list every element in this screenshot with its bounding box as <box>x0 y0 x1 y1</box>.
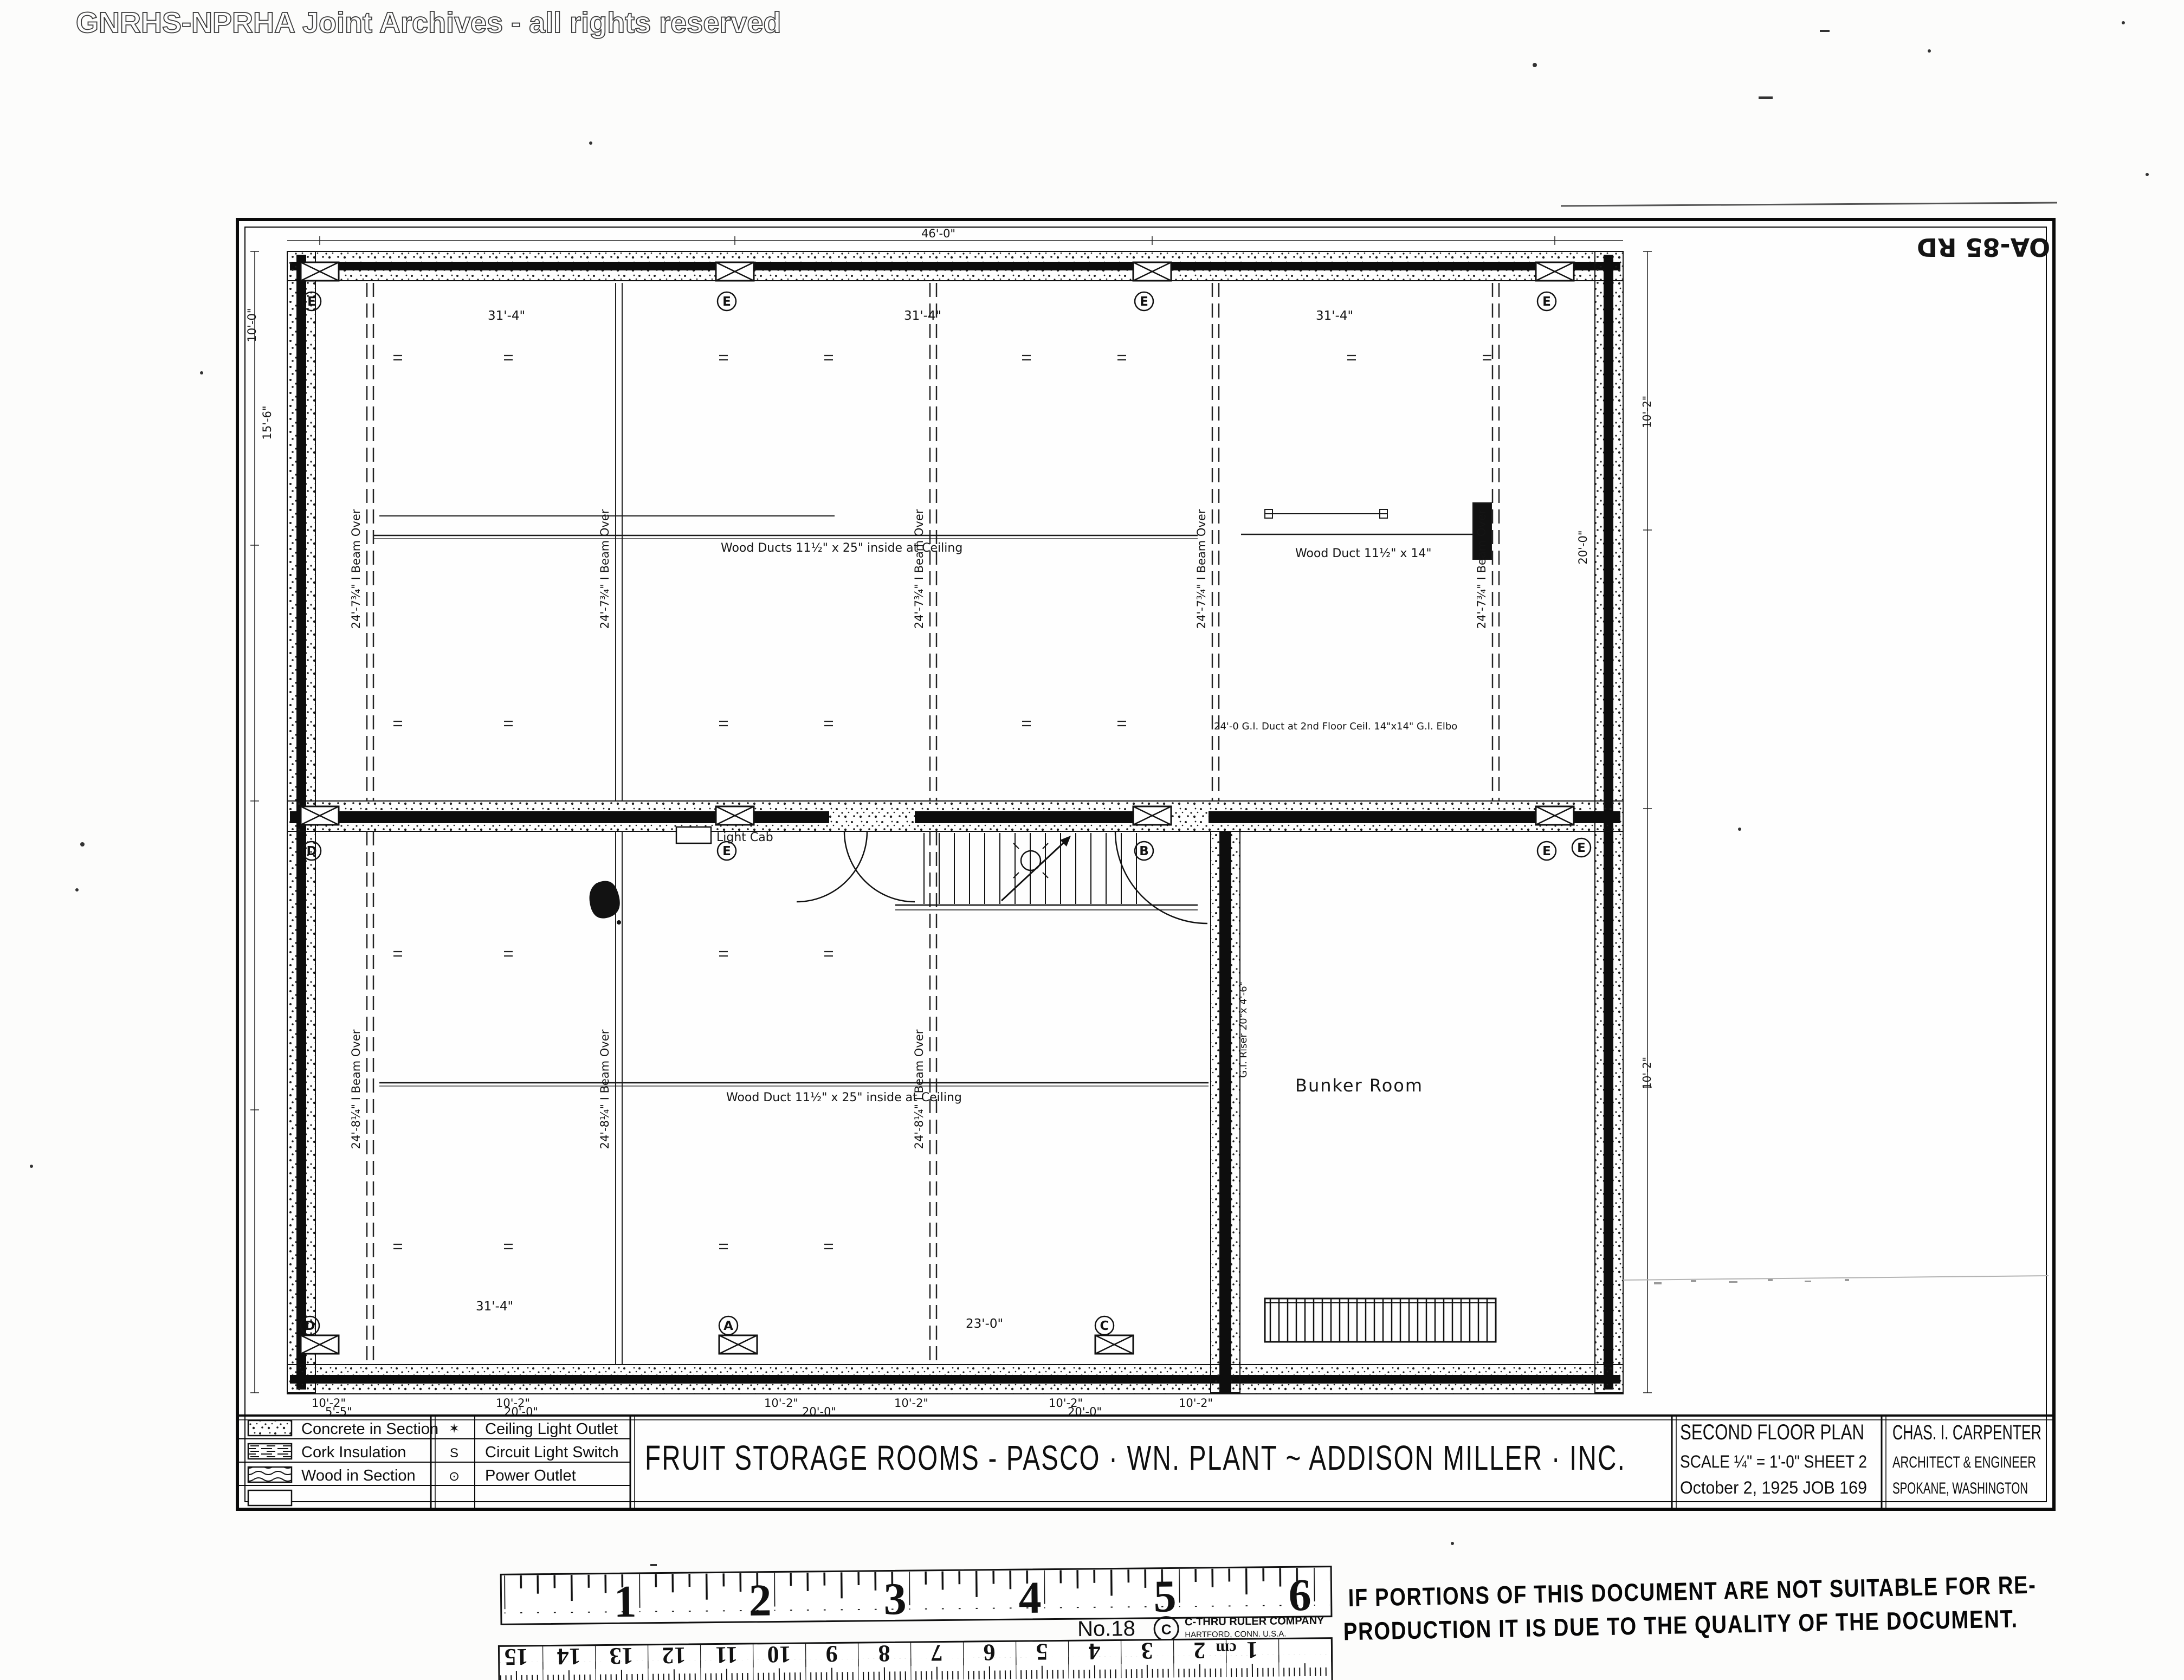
dimension: 10'-2" <box>764 1397 798 1410</box>
watermark-text: GNRHS-NPRHA Joint Archives - all rights … <box>76 7 781 39</box>
beam-label: 24'-7¾" I Beam Over <box>350 509 363 629</box>
column-mark: D <box>306 844 316 858</box>
column-mark: E <box>1542 295 1551 309</box>
inch-number: 5 <box>1153 1571 1177 1621</box>
architect-line: ARCHITECT & ENGINEER <box>1892 1453 2036 1471</box>
legend-symbol: ✶ <box>449 1421 460 1436</box>
drawing-title: FRUIT STORAGE ROOMS - PASCO · WN. PLANT … <box>645 1438 1626 1477</box>
cm-number: 7 <box>931 1640 942 1666</box>
duct-label-top: Wood Ducts 11½" x 25" inside at Ceiling <box>721 541 962 555</box>
column-mark: E <box>1140 295 1148 309</box>
bay-dimension: 31'-4" <box>1316 309 1353 323</box>
cm-number: 5 <box>1036 1639 1048 1665</box>
legend-label: Ceiling Light Outlet <box>485 1420 618 1438</box>
quality-stamp: IF PORTIONS OF THIS DOCUMENT ARE NOT SUI… <box>1342 1571 2037 1646</box>
blueprint-drawing: GNRHS-NPRHA Joint Archives - all rights … <box>0 0 2184 1680</box>
cm-number: 12 <box>662 1642 686 1669</box>
centimeter-ruler-upside-down: 15 14 13 12 11 10 9 8 7 6 5 4 3 2 1 cm <box>499 1636 1332 1680</box>
empty-swatch <box>248 1490 292 1505</box>
beam-label: 24'-7¾" I Beam Over <box>1195 509 1208 629</box>
legend-label: Wood in Section <box>301 1467 416 1484</box>
wood-waves-swatch <box>248 1467 292 1482</box>
bunker-grill <box>1265 1298 1496 1342</box>
cm-number: 4 <box>1088 1638 1100 1665</box>
light-cab-label: Light Cab <box>716 831 773 844</box>
bunker-room-label: Bunker Room <box>1295 1075 1423 1096</box>
legend-symbol: S <box>450 1446 458 1461</box>
bunker-room-wall <box>1211 831 1240 1393</box>
column-mark: E <box>722 295 731 309</box>
drawing-info-line: SECOND FLOOR PLAN <box>1680 1420 1864 1444</box>
column-mark: C <box>1100 1319 1109 1333</box>
beam-label: 24'-7¾" I Beam Over <box>598 509 611 629</box>
dimension: 15'-6" <box>261 405 274 440</box>
architect-line: CHAS. I. CARPENTER <box>1892 1421 2041 1444</box>
brand-logo-letter: C <box>1161 1621 1172 1637</box>
beam-label: 24'-7¾" I Beam Over <box>913 509 926 629</box>
cork-dashes-swatch <box>248 1444 292 1459</box>
drawing-info-block: SECOND FLOOR PLAN SCALE ¼" = 1'-0" SHEET… <box>1680 1420 1867 1497</box>
cm-number: 10 <box>767 1641 791 1668</box>
dimension: 10'-0" <box>245 308 259 342</box>
dimension: 46'-0" <box>921 227 955 240</box>
beam-label: 24'-7¾" I Beam Over <box>1475 509 1488 629</box>
photographed-rulers: 1 2 3 4 5 6 No.18 C C-THRU RULER COMPANY… <box>498 1567 1332 1680</box>
column-mark: E <box>722 844 731 858</box>
legend-symbol: ⊙ <box>449 1469 460 1484</box>
duct-label-bottom: Wood Duct 11½" x 25" inside at Ceiling <box>726 1091 962 1104</box>
cm-number: 15 <box>504 1644 528 1670</box>
dimension: 20'-0" <box>1576 530 1589 564</box>
light-cabinet-box <box>676 827 711 843</box>
cm-number: 2 <box>1193 1637 1205 1664</box>
inch-number: 2 <box>748 1575 772 1626</box>
beam-label: 24'-8¼" I Beam Over <box>598 1029 611 1149</box>
column-mark: D <box>305 1319 315 1333</box>
scanned-blueprint-page: GNRHS-NPRHA Joint Archives - all rights … <box>0 0 2184 1680</box>
legend-label: Circuit Light Switch <box>485 1444 619 1461</box>
inch-number: 3 <box>883 1574 907 1624</box>
cm-number: 13 <box>609 1643 633 1669</box>
drawing-info-line: October 2, 1925 JOB 169 <box>1680 1478 1867 1497</box>
beam-label: 24'-8¼" I Beam Over <box>350 1029 363 1149</box>
cm-unit-label: cm <box>1216 1639 1237 1657</box>
column-mark: E <box>307 295 316 309</box>
stamp-line: PRODUCTION IT IS DUE TO THE QUALITY OF T… <box>1343 1604 2018 1645</box>
architect-line: SPOKANE, WASHINGTON <box>1892 1479 2028 1497</box>
inch-number: 4 <box>1018 1573 1042 1623</box>
drawing-info-line: SCALE ¼" = 1'-0" SHEET 2 <box>1680 1452 1867 1471</box>
inch-number: 6 <box>1288 1570 1311 1620</box>
bay-dimension: 31'-4" <box>904 309 941 323</box>
cm-number: 9 <box>825 1640 837 1667</box>
legend-label: Power Outlet <box>485 1467 576 1484</box>
cm-number: 3 <box>1141 1638 1153 1664</box>
ruler-model: No.18 <box>1077 1617 1135 1641</box>
concrete-stipple-swatch <box>248 1420 292 1436</box>
archive-mark-handwriting: OA-85 RD <box>1917 232 2050 262</box>
cm-number: 6 <box>983 1639 995 1666</box>
dimension: 23'-0" <box>966 1317 1003 1331</box>
cm-number: 1 <box>1246 1637 1258 1663</box>
column-mark: E <box>1577 841 1586 855</box>
ruler-brand: C-THRU RULER COMPANY <box>1185 1615 1324 1628</box>
dimension: 10'-2" <box>1179 1397 1213 1410</box>
cm-number: 14 <box>557 1643 580 1670</box>
legend-label: Concrete in Section <box>301 1420 438 1438</box>
dimension: 10'-2" <box>1640 396 1653 428</box>
cm-number: 11 <box>715 1642 738 1668</box>
bay-dimension: 31'-4" <box>476 1300 513 1314</box>
column-mark: A <box>723 1319 733 1333</box>
dimension: 10'-2" <box>1640 1057 1653 1089</box>
riser-note: G.I. Riser 20"x 4'-6" <box>1238 981 1249 1078</box>
legend-label: Cork Insulation <box>301 1444 406 1461</box>
dimension: 10'-2" <box>894 1397 928 1410</box>
beam-label: 24'-8¼" I Beam Over <box>913 1029 926 1149</box>
duct-label-right: Wood Duct 11½" x 14" <box>1295 547 1432 560</box>
middle-wall <box>287 801 1623 831</box>
column-mark: E <box>1542 844 1551 858</box>
duct-note: 24'-0 G.I. Duct at 2nd Floor Ceil. 14"x1… <box>1214 721 1457 732</box>
bay-dimension: 31'-4" <box>488 309 525 323</box>
cm-number: 8 <box>878 1640 890 1666</box>
inch-number: 1 <box>613 1576 637 1627</box>
architect-block: CHAS. I. CARPENTER ARCHITECT & ENGINEER … <box>1892 1421 2041 1497</box>
column-mark: B <box>1139 844 1149 858</box>
